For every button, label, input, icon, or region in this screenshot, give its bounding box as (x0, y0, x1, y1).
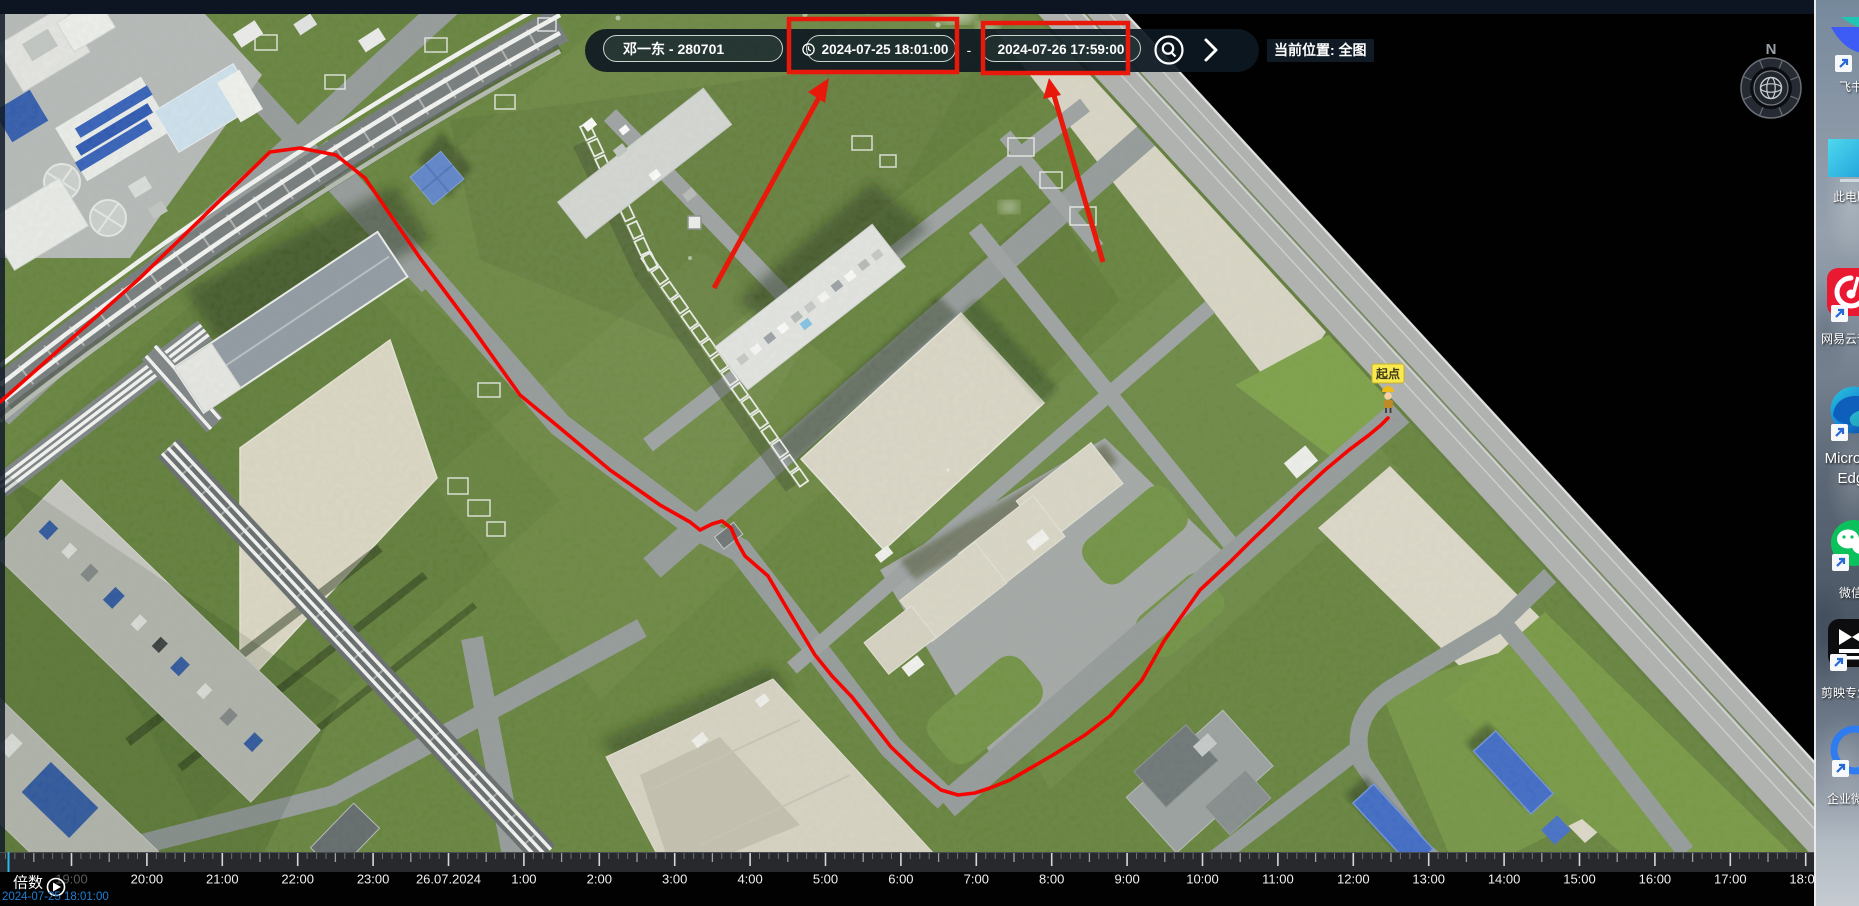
svg-text:16:00: 16:00 (1639, 872, 1672, 887)
svg-text:23:00: 23:00 (357, 872, 390, 887)
svg-text:2:00: 2:00 (587, 872, 612, 887)
svg-text:N: N (1766, 41, 1777, 58)
svg-text:4:00: 4:00 (737, 872, 762, 887)
svg-text:17:00: 17:00 (1714, 872, 1747, 887)
svg-text:15:00: 15:00 (1563, 872, 1596, 887)
svg-text:13:00: 13:00 (1412, 872, 1445, 887)
svg-text:10:00: 10:00 (1186, 872, 1219, 887)
svg-text:18:00: 18:00 (1789, 872, 1814, 887)
svg-text:1:00: 1:00 (511, 872, 536, 887)
svg-text:3:00: 3:00 (662, 872, 687, 887)
svg-text:20:00: 20:00 (131, 872, 164, 887)
svg-text:26.07.2024: 26.07.2024 (416, 872, 481, 887)
svg-text:22:00: 22:00 (281, 872, 314, 887)
svg-text:2024-07-25 18:01:00: 2024-07-25 18:01:00 (2, 891, 109, 903)
svg-text:21:00: 21:00 (206, 872, 239, 887)
svg-text:7:00: 7:00 (964, 872, 989, 887)
svg-text:11:00: 11:00 (1262, 872, 1294, 887)
svg-text:14:00: 14:00 (1488, 872, 1521, 887)
svg-text:5:00: 5:00 (813, 872, 838, 887)
svg-text:8:00: 8:00 (1039, 872, 1064, 887)
svg-text:6:00: 6:00 (888, 872, 913, 887)
svg-text:起点: 起点 (1375, 366, 1400, 381)
svg-text:9:00: 9:00 (1114, 872, 1139, 887)
svg-text:12:00: 12:00 (1337, 872, 1370, 887)
svg-text:倍数: 倍数 (13, 874, 43, 891)
